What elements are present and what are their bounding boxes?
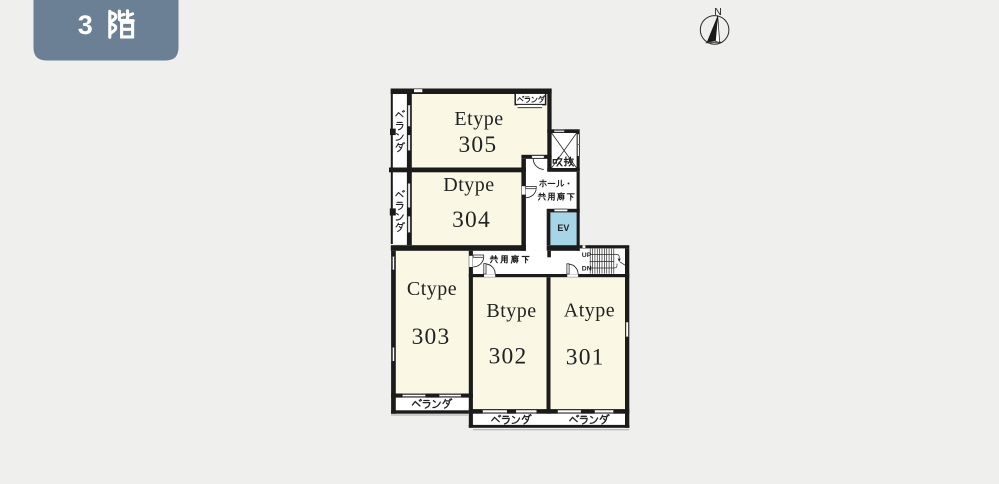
svg-text:305: 305 (458, 132, 497, 158)
svg-text:Btype: Btype (486, 300, 536, 322)
svg-text:UP: UP (582, 252, 592, 259)
svg-text:DN: DN (582, 266, 592, 273)
svg-text:Atype: Atype (564, 300, 615, 322)
svg-text:304: 304 (452, 207, 491, 233)
svg-text:Etype: Etype (454, 108, 503, 130)
svg-text:Dtype: Dtype (443, 174, 494, 196)
svg-text:EV: EV (557, 223, 569, 233)
svg-text:3: 3 (78, 10, 93, 40)
svg-text:303: 303 (412, 324, 451, 350)
svg-text:301: 301 (566, 344, 605, 370)
svg-text:302: 302 (489, 344, 528, 370)
svg-text:Ctype: Ctype (407, 278, 457, 300)
